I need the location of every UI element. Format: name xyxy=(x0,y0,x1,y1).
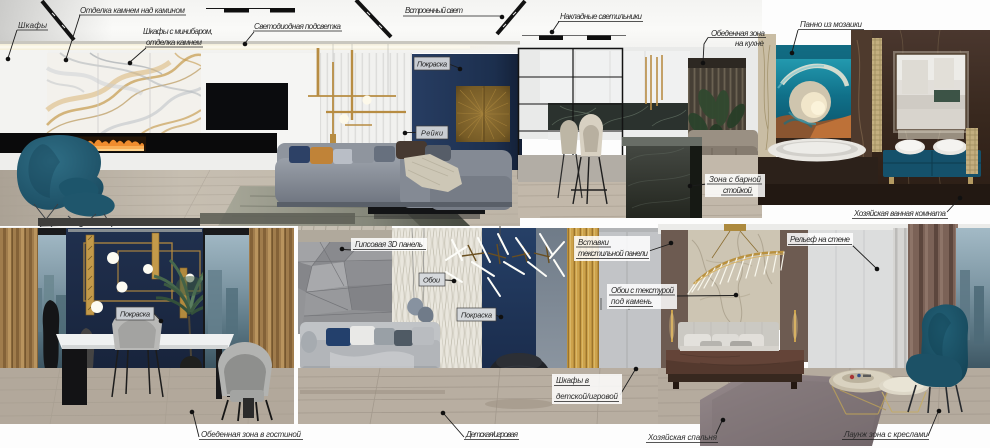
svg-text:Рельеф на стене: Рельеф на стене xyxy=(790,235,851,244)
svg-text:отделка камнем: отделка камнем xyxy=(146,38,203,47)
svg-text:Хозяйская спальня: Хозяйская спальня xyxy=(647,433,718,442)
svg-text:Шкафы с минибаром,: Шкафы с минибаром, xyxy=(143,27,213,36)
svg-text:Накладные светильники: Накладные светильники xyxy=(560,12,643,21)
svg-text:Панно из мозаики: Панно из мозаики xyxy=(800,20,863,29)
svg-text:текстильной панели: текстильной панели xyxy=(578,249,649,258)
svg-text:Рейки: Рейки xyxy=(421,129,443,138)
svg-text:Лаунж зона с креслами: Лаунж зона с креслами xyxy=(843,430,929,439)
svg-text:детской/игровой: детской/игровой xyxy=(556,392,619,401)
svg-text:Гипсовая 3D панель: Гипсовая 3D панель xyxy=(355,240,423,249)
svg-text:Обеденная зона в гостиной: Обеденная зона в гостиной xyxy=(201,430,302,439)
svg-text:Обои с текстурой: Обои с текстурой xyxy=(611,286,675,295)
svg-text:на кухне: на кухне xyxy=(735,39,765,48)
svg-text:Светодиодная подсветка: Светодиодная подсветка xyxy=(254,22,342,31)
svg-text:Отделка камнем над камином: Отделка камнем над камином xyxy=(80,6,186,15)
svg-text:Шкафы: Шкафы xyxy=(18,21,47,30)
svg-text:Покраска: Покраска xyxy=(120,310,150,319)
svg-text:Хозяйская ванная комната: Хозяйская ванная комната xyxy=(853,209,947,218)
svg-text:Встроенный свет: Встроенный свет xyxy=(405,6,463,15)
svg-text:под камень: под камень xyxy=(611,297,652,306)
svg-text:стойкой: стойкой xyxy=(723,186,753,195)
svg-text:Вставки: Вставки xyxy=(578,238,610,247)
svg-text:Шкафы в: Шкафы в xyxy=(556,376,589,385)
svg-text:Зона с барной: Зона с барной xyxy=(709,175,762,184)
svg-text:Покраска: Покраска xyxy=(417,60,447,69)
svg-text:Детская/игровая: Детская/игровая xyxy=(465,430,519,439)
svg-text:Покраска: Покраска xyxy=(461,311,492,320)
svg-text:Обеденная зона: Обеденная зона xyxy=(711,29,766,38)
svg-text:Обои: Обои xyxy=(423,276,440,285)
